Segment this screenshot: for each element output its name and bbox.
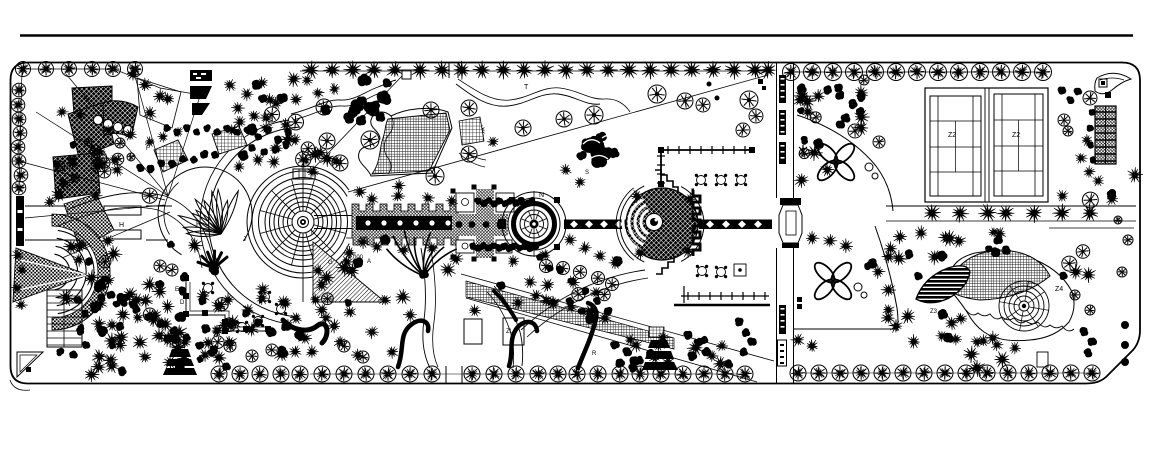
svg-text:J: J [243, 237, 246, 243]
svg-text:Z2: Z2 [1012, 132, 1020, 139]
svg-text:R: R [592, 351, 597, 357]
svg-text:Z4: Z4 [1055, 286, 1063, 293]
svg-text:E: E [175, 287, 179, 293]
svg-text:N: N [539, 192, 544, 199]
svg-text:H: H [119, 222, 124, 229]
svg-text:D: D [180, 300, 185, 306]
svg-text:T: T [524, 84, 529, 91]
svg-text:K: K [311, 230, 315, 236]
svg-text:Z2: Z2 [948, 132, 956, 139]
svg-text:S: S [585, 170, 589, 176]
svg-text:G: G [328, 260, 333, 266]
svg-text:A: A [367, 259, 371, 265]
svg-text:Z3: Z3 [930, 309, 938, 315]
